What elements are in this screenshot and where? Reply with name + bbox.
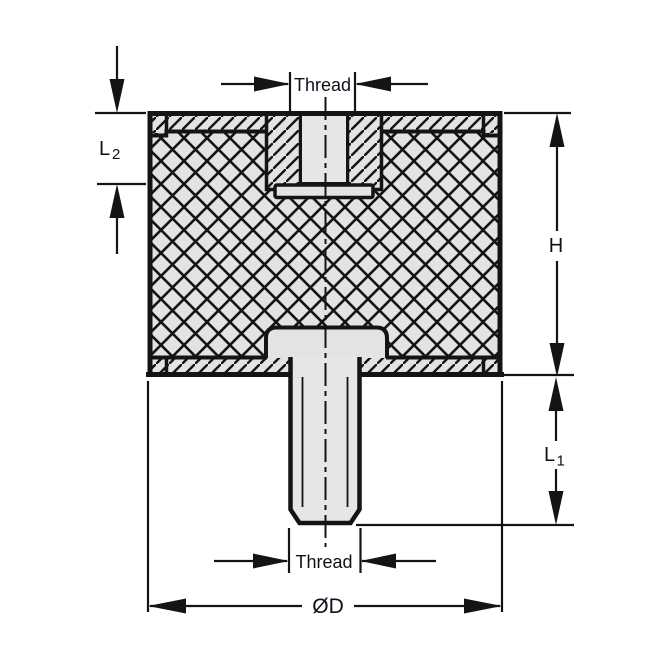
rubber-mount-section-drawing: Thread L 2 H L 1 Thre xyxy=(0,0,670,670)
arrowhead-right-icon xyxy=(253,554,289,569)
thread-bore xyxy=(302,114,346,184)
dimension-h: H xyxy=(504,113,574,377)
label-l2-subscript: 2 xyxy=(112,146,120,163)
mount-body xyxy=(146,97,504,547)
technical-drawing-canvas: Thread L 2 H L 1 Thre xyxy=(0,0,670,670)
insert-flange xyxy=(275,185,373,198)
arrowhead-down-icon xyxy=(110,79,125,113)
label-thread-bottom: Thread xyxy=(295,552,352,572)
arrowhead-right-icon xyxy=(254,77,290,92)
arrowhead-up-icon xyxy=(550,113,565,147)
arrowhead-up-icon xyxy=(549,377,564,411)
arrowhead-up-icon xyxy=(110,184,125,218)
dimension-l1: L 1 xyxy=(356,377,574,525)
arrowhead-down-icon xyxy=(550,343,565,377)
label-thread-top: Thread xyxy=(294,75,351,95)
label-l1-subscript: 1 xyxy=(557,453,565,470)
label-l1-base: L xyxy=(544,444,555,466)
arrowhead-down-icon xyxy=(549,491,564,525)
insert-wall-right xyxy=(348,114,382,190)
arrowhead-left-icon xyxy=(355,77,391,92)
label-height: H xyxy=(549,235,563,257)
arrowhead-left-icon xyxy=(361,554,397,569)
threaded-insert xyxy=(267,114,382,198)
dimension-l2: L 2 xyxy=(95,46,146,254)
arrowhead-left-icon xyxy=(148,599,186,614)
insert-wall-left xyxy=(267,114,301,190)
label-diameter: ØD xyxy=(312,595,344,618)
arrowhead-right-icon xyxy=(464,599,502,614)
label-l2-base: L xyxy=(99,138,110,160)
